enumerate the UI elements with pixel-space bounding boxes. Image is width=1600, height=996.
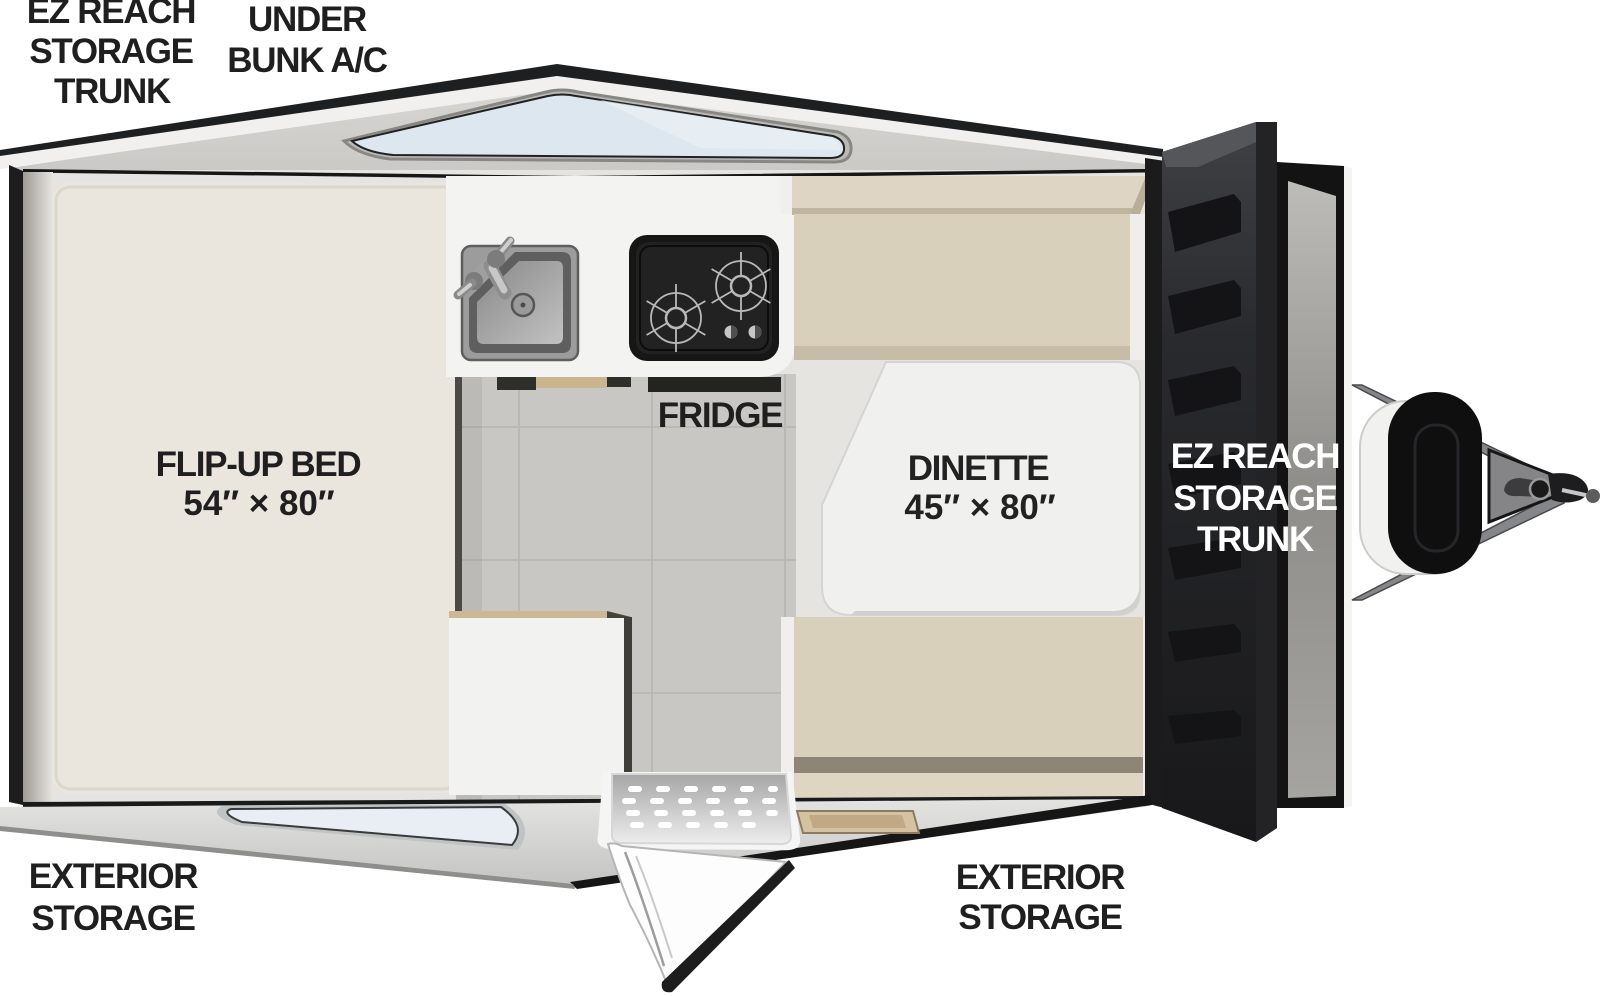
- svg-text:FRIDGE: FRIDGE: [658, 396, 782, 435]
- svg-text:EZ REACH: EZ REACH: [27, 0, 196, 31]
- svg-text:BUNK A/C: BUNK A/C: [227, 41, 387, 80]
- svg-text:EXTERIOR: EXTERIOR: [956, 858, 1126, 897]
- svg-text:54″ × 80″: 54″ × 80″: [183, 484, 335, 523]
- svg-text:TRUNK: TRUNK: [54, 72, 171, 111]
- svg-text:EZ REACH: EZ REACH: [1171, 437, 1340, 476]
- svg-text:DINETTE: DINETTE: [908, 449, 1049, 488]
- svg-text:STORAGE: STORAGE: [29, 32, 192, 71]
- svg-text:45″ × 80″: 45″ × 80″: [904, 488, 1056, 527]
- svg-text:STORAGE: STORAGE: [31, 899, 194, 938]
- svg-text:EXTERIOR: EXTERIOR: [29, 857, 199, 896]
- svg-text:FLIP-UP BED: FLIP-UP BED: [156, 445, 361, 484]
- svg-text:TRUNK: TRUNK: [1197, 520, 1314, 559]
- svg-text:UNDER: UNDER: [248, 0, 367, 39]
- svg-text:STORAGE: STORAGE: [1173, 479, 1336, 518]
- svg-text:STORAGE: STORAGE: [958, 898, 1121, 937]
